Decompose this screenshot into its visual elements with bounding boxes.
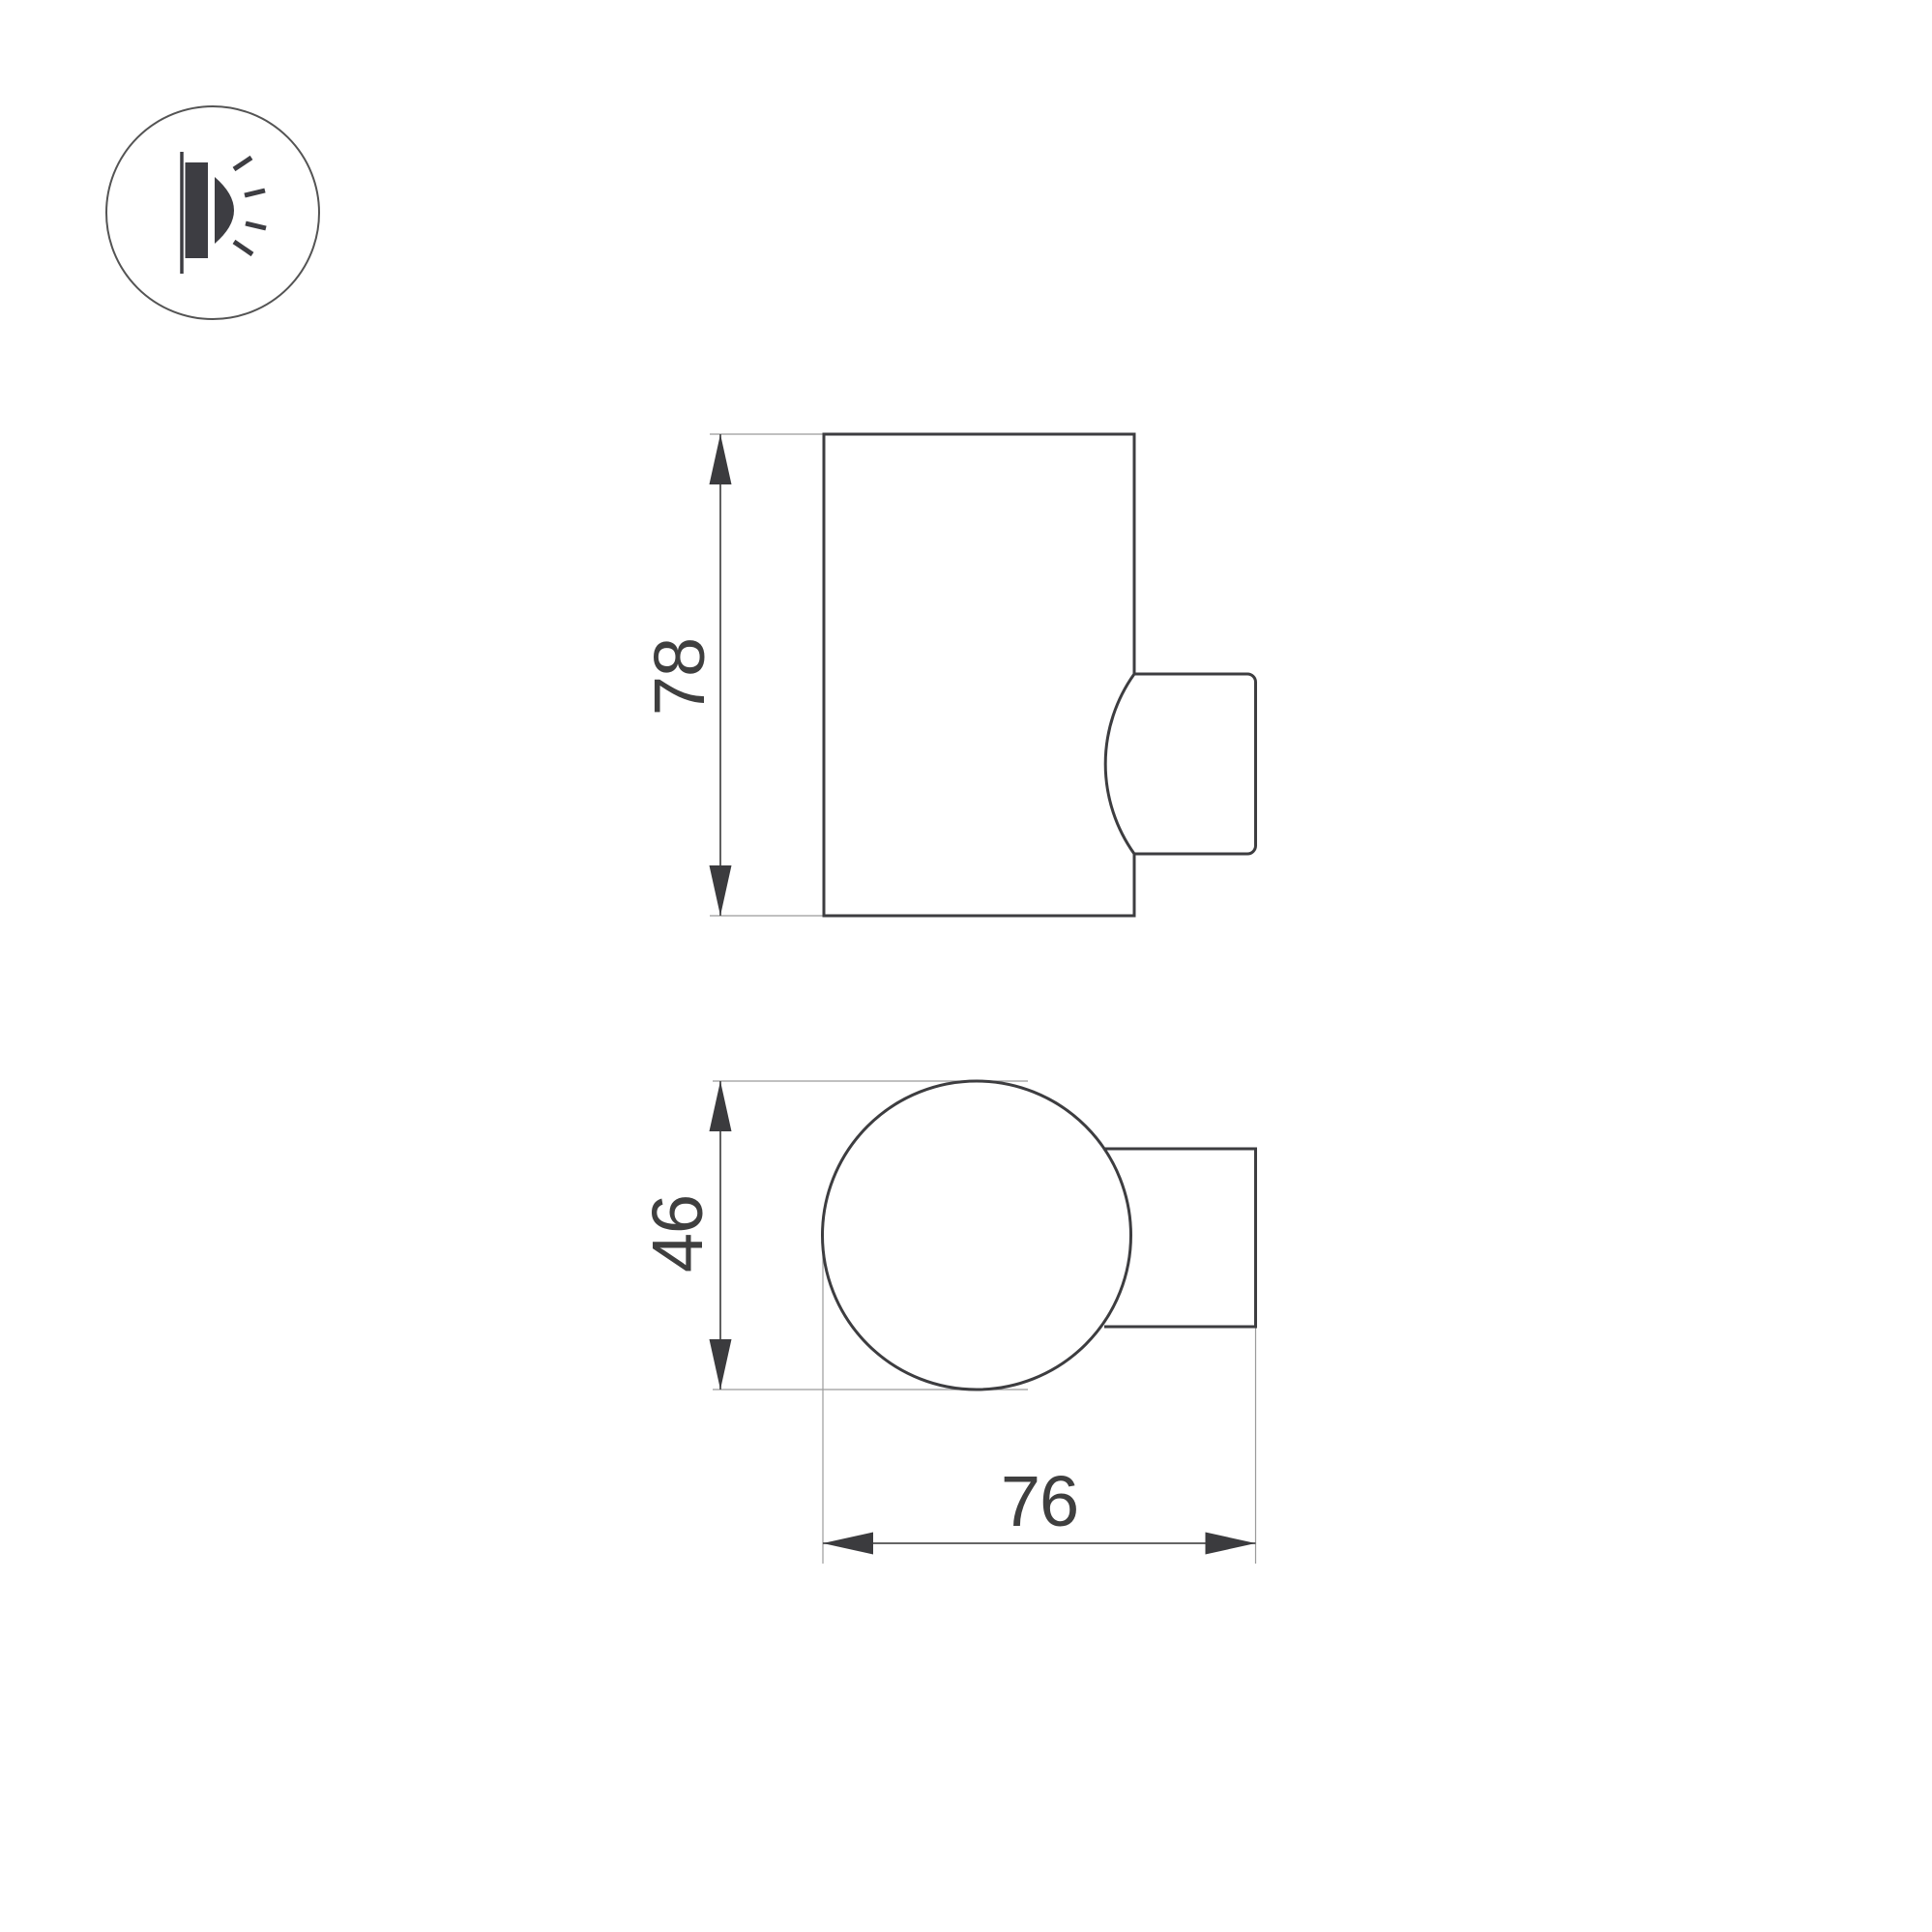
icon-badge-circle — [106, 106, 319, 319]
arrow-up-icon — [710, 434, 732, 484]
height-dimension: 78 — [639, 434, 732, 916]
mount-bracket-outline — [1134, 674, 1256, 854]
top-view: 46 76 — [637, 1081, 1256, 1564]
depth-dimension-label: 76 — [1001, 1461, 1078, 1541]
drawing-svg: 78 46 — [0, 0, 1932, 1932]
lamp-circle-outline — [823, 1081, 1131, 1390]
diameter-dimension-label: 46 — [637, 1195, 717, 1273]
lamp-body-outline — [824, 434, 1134, 916]
side-view: 78 — [639, 434, 1256, 916]
arrow-up-icon — [710, 1081, 732, 1131]
diameter-dimension: 46 — [637, 1081, 732, 1390]
arrow-left-icon — [823, 1533, 873, 1555]
arrow-down-icon — [710, 1339, 732, 1390]
depth-dimension: 76 — [823, 1461, 1256, 1555]
lamp-body-icon — [186, 162, 209, 258]
wall-lamp-icon-badge — [106, 106, 319, 319]
technical-drawing-canvas: 78 46 — [0, 0, 1932, 1932]
arrow-down-icon — [710, 865, 732, 916]
arrow-right-icon — [1206, 1533, 1256, 1555]
height-dimension-label: 78 — [639, 638, 719, 716]
